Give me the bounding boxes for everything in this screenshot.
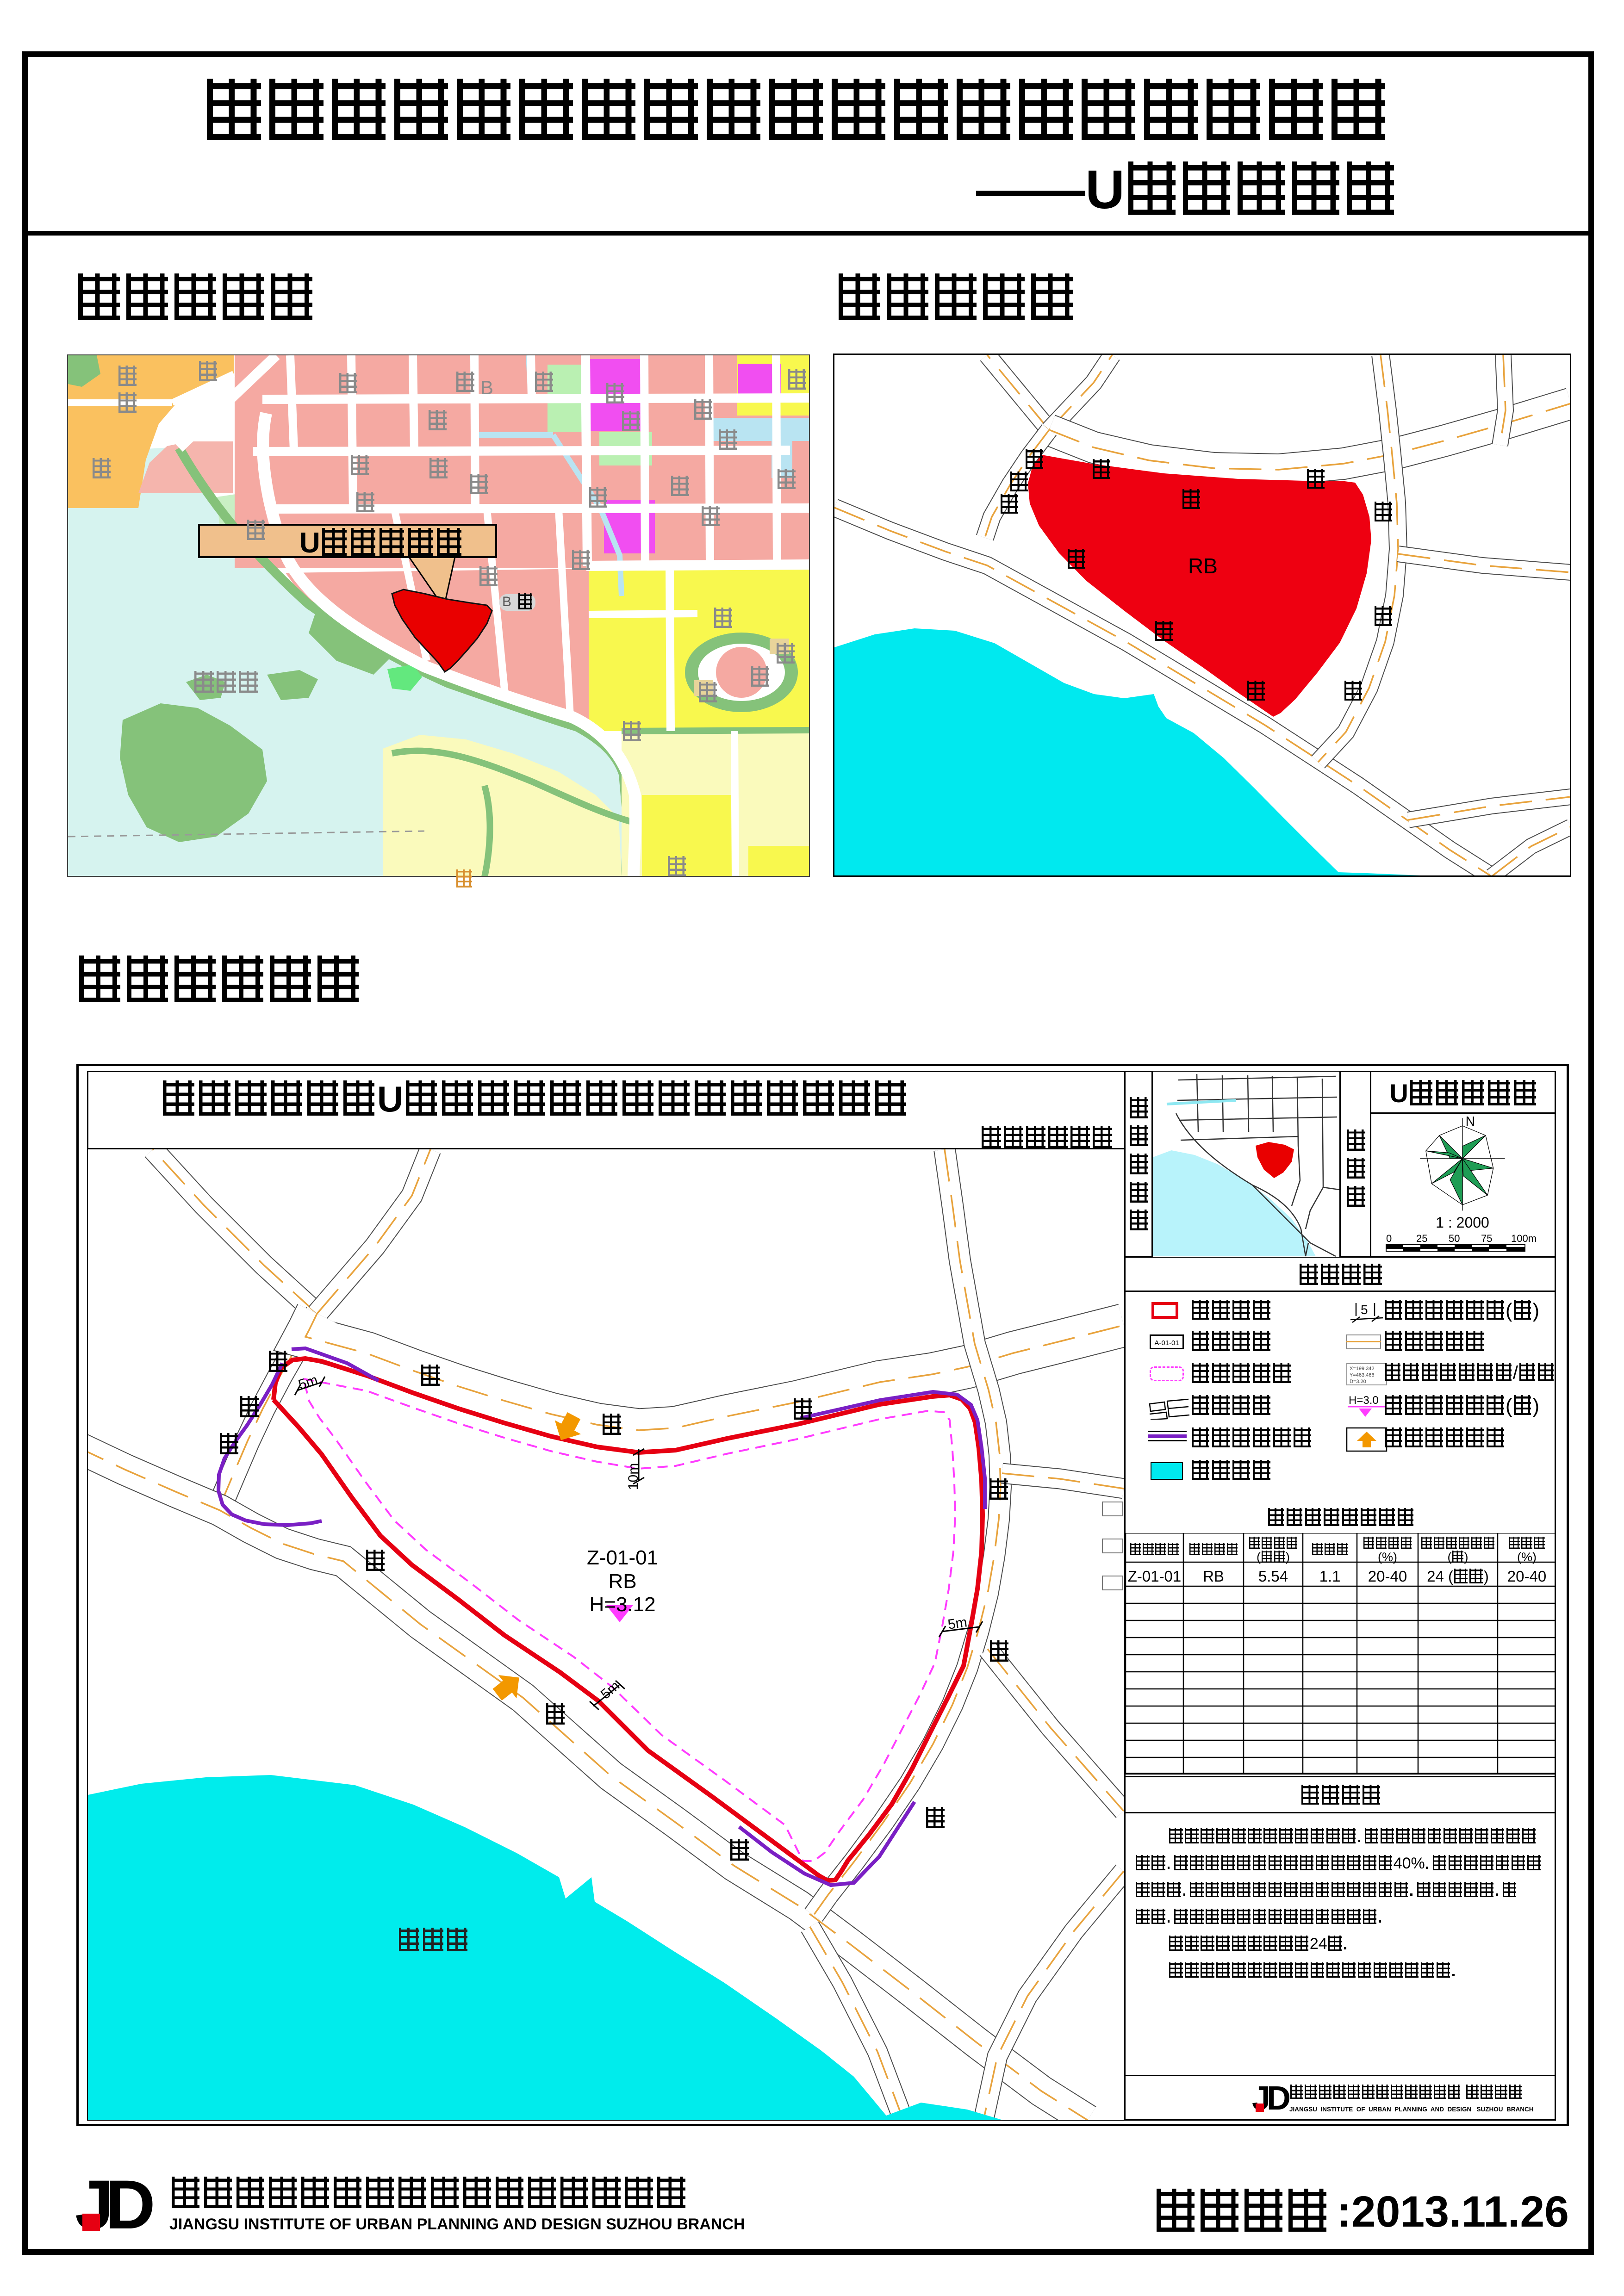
svg-text:Y=463.466: Y=463.466: [1350, 1372, 1375, 1378]
svg-text:D=3.20: D=3.20: [1350, 1379, 1366, 1384]
svg-text:5: 5: [1361, 1303, 1368, 1317]
svg-text:100m: 100m: [1511, 1233, 1537, 1244]
svg-text:H=3.0: H=3.0: [1349, 1394, 1379, 1407]
svg-text:50: 50: [1449, 1233, 1460, 1244]
svg-text:X=199.342: X=199.342: [1350, 1366, 1375, 1371]
svg-text:25: 25: [1416, 1233, 1427, 1244]
svg-text:75: 75: [1481, 1233, 1492, 1244]
svg-text:0: 0: [1386, 1233, 1392, 1244]
svg-text:N: N: [1466, 1114, 1475, 1129]
